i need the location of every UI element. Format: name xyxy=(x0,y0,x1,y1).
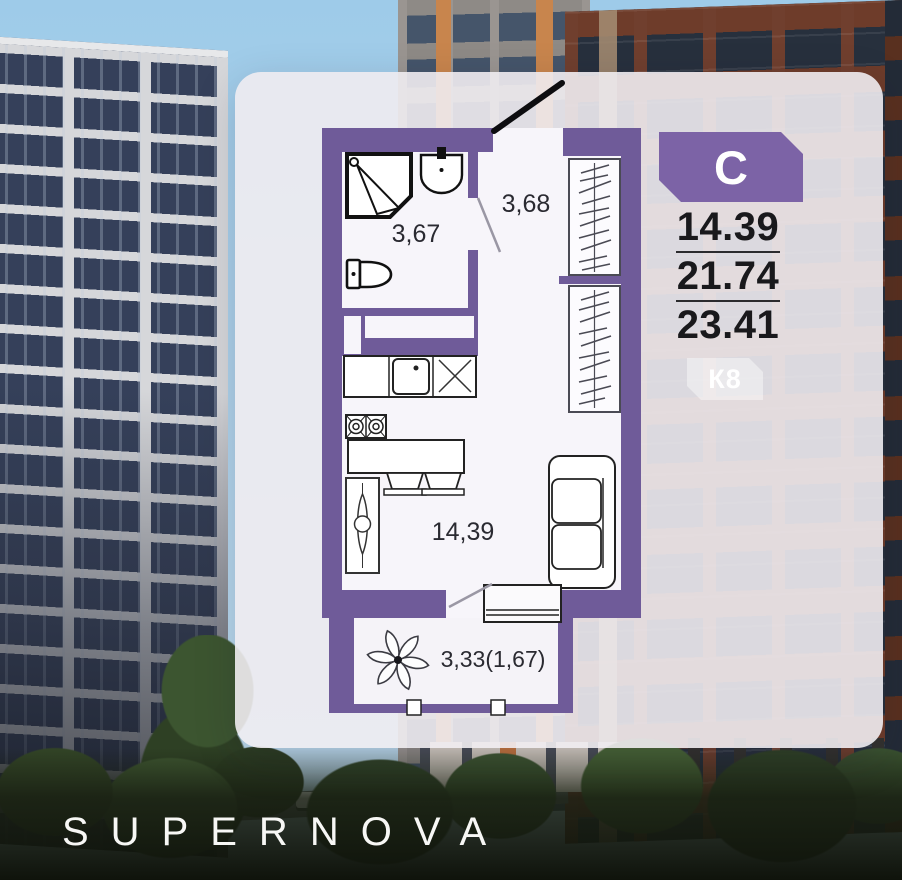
area-total-value: 23.41 xyxy=(655,302,801,349)
living-area-label: 14,39 xyxy=(432,518,495,546)
scene: SUPERNOVA xyxy=(0,0,902,880)
area-apartment-value: 21.74 xyxy=(655,253,801,300)
bathroom-area-label: 3,67 xyxy=(392,220,441,248)
area-living-value: 14.39 xyxy=(655,204,801,251)
balcony-window-icon xyxy=(484,585,561,622)
toilet-icon xyxy=(347,260,391,288)
table-icon xyxy=(348,440,464,473)
stove-burners-icon xyxy=(346,415,386,438)
floorplan-card: 3,67 3,68 14,39 3,33(1,67) С 14.39 21.74… xyxy=(235,72,883,748)
balcony-area-label: 3,33(1,67) xyxy=(441,646,546,672)
stool-icon xyxy=(422,473,464,495)
building-number-badge: К8 xyxy=(687,358,763,400)
wall-niche-wide xyxy=(365,316,474,338)
wardrobe-bottom-icon xyxy=(569,286,620,412)
hallway-area-label: 3,68 xyxy=(502,190,551,218)
stool-icon xyxy=(384,473,426,495)
glazing-mullion-icon xyxy=(407,700,421,715)
sofa-icon xyxy=(549,456,615,588)
brand-logo: SUPERNOVA xyxy=(62,810,508,855)
wall-niche-small xyxy=(344,316,361,354)
sink-icon xyxy=(421,147,462,193)
cabinet-icon xyxy=(346,478,379,573)
apartment-type-badge: С xyxy=(659,132,803,202)
entrance-door-icon xyxy=(494,83,562,131)
kitchen-counter-icon xyxy=(344,356,476,397)
glazing-mullion-icon xyxy=(491,700,505,715)
floorplan-drawing: 3,67 3,68 14,39 3,33(1,67) xyxy=(321,126,651,726)
shower-icon xyxy=(347,154,411,217)
area-summary: 14.39 21.74 23.41 xyxy=(655,204,801,349)
wardrobe-top-icon xyxy=(569,159,620,275)
